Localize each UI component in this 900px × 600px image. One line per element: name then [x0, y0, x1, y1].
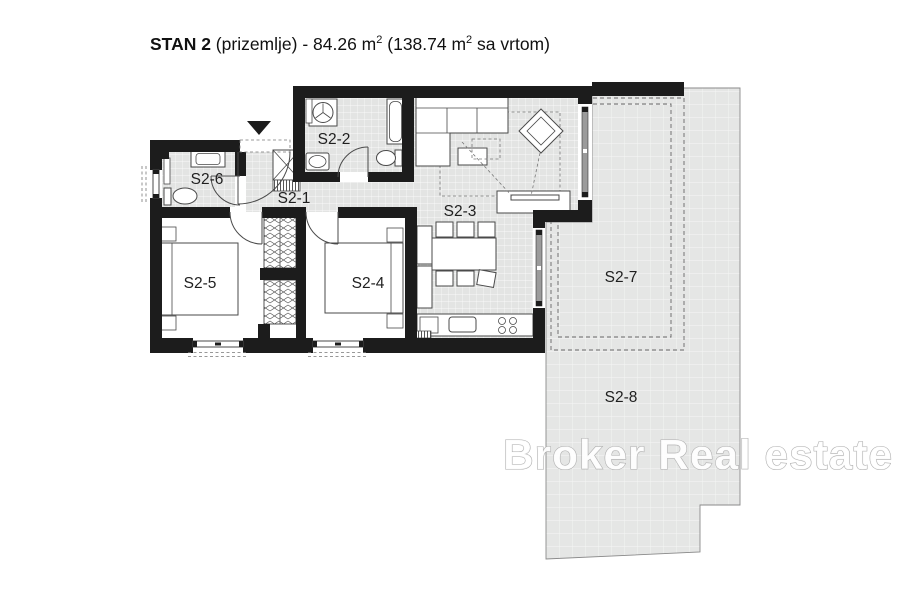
- washing-machine-icon: [309, 99, 337, 126]
- toilet-s2-6-icon: [164, 188, 197, 205]
- chair: [436, 222, 453, 237]
- sliding-door-kitchen: [533, 228, 545, 308]
- room-label-s2-4: S2-4: [352, 275, 385, 292]
- floor-plan-page: S2-1 S2-2 S2-3 S2-4 S2-5 S2-6 S2-7 S2-8 …: [0, 0, 900, 600]
- bathtub-icon: [387, 99, 404, 144]
- chair: [457, 271, 474, 286]
- chair: [436, 271, 453, 286]
- watermark: Broker Real estate: [503, 431, 893, 478]
- tv-cabinet: [497, 191, 570, 213]
- nightstand: [387, 314, 403, 328]
- plan-title: STAN 2 (prizemlje) - 84.26 m2 (138.74 m2…: [150, 34, 550, 54]
- nightstand: [387, 228, 403, 242]
- tall-cabinet: [417, 266, 432, 308]
- room-label-s2-7: S2-7: [605, 269, 638, 286]
- room-label-s2-1: S2-1: [278, 190, 311, 207]
- sliding-door-living: [578, 104, 592, 200]
- radiator-icon: [164, 158, 170, 184]
- coffee-table: [458, 148, 487, 165]
- dining-set: [432, 222, 496, 287]
- dining-table: [432, 238, 496, 270]
- room-label-s2-2: S2-2: [318, 131, 351, 148]
- kitchen-sink: [449, 317, 476, 332]
- chair: [478, 222, 495, 237]
- bathroom-niche: [306, 99, 312, 123]
- sink-s2-6-icon: [191, 151, 225, 167]
- room-label-s2-3: S2-3: [444, 203, 477, 220]
- room-label-s2-5: S2-5: [184, 275, 217, 292]
- sink-s2-2-icon: [306, 153, 329, 170]
- room-label-s2-8: S2-8: [605, 389, 638, 406]
- tall-cabinet: [417, 226, 432, 264]
- toilet-s2-2-icon: [377, 150, 403, 166]
- floor-plan-drawing: S2-1 S2-2 S2-3 S2-4 S2-5 S2-6 S2-7 S2-8 …: [0, 0, 900, 600]
- chair: [477, 270, 496, 288]
- room-label-s2-6: S2-6: [191, 171, 224, 188]
- chair: [457, 222, 474, 237]
